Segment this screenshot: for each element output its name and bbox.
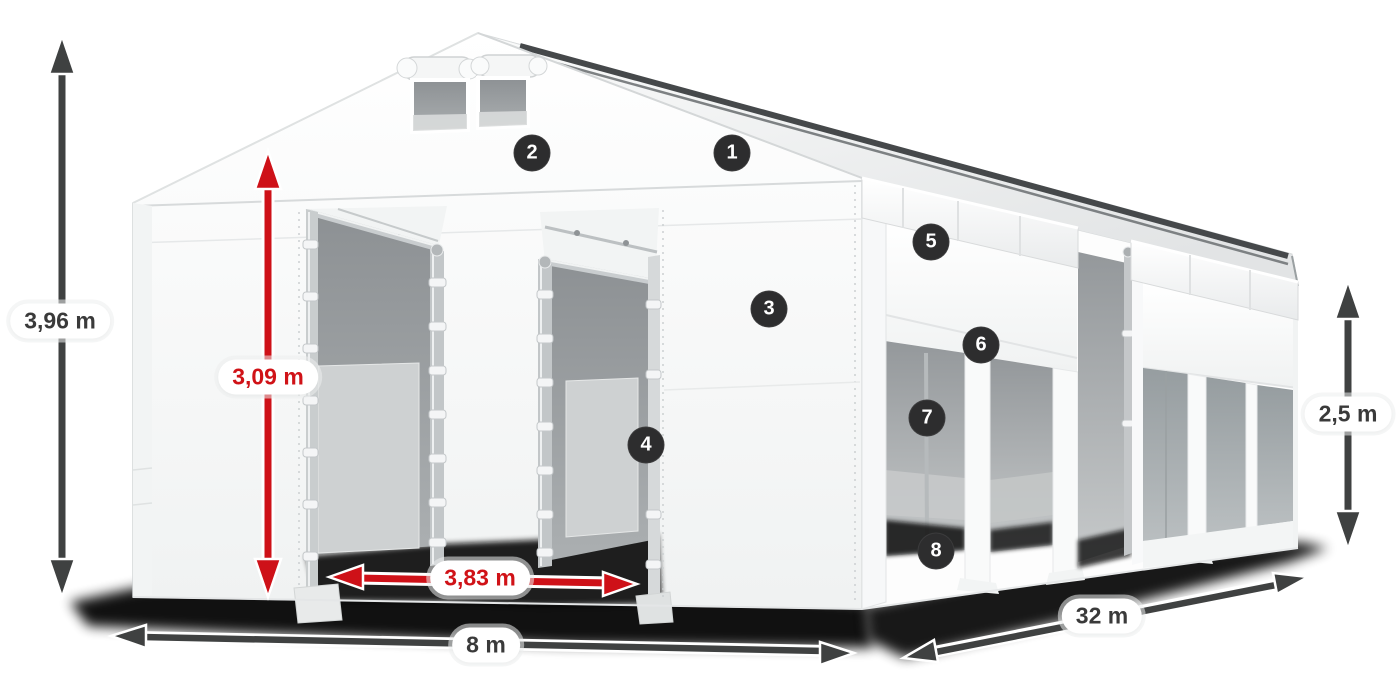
- door-gate-right: [537, 208, 659, 568]
- ground-pad-left: [294, 584, 342, 623]
- dimension-label-door-height: 3,09 m: [218, 360, 318, 395]
- feature-hotspot-7[interactable]: 7: [909, 400, 946, 437]
- feature-hotspot-2[interactable]: 2: [514, 135, 551, 172]
- feature-hotspot-1[interactable]: 1: [714, 135, 751, 172]
- product-figure: 3,96 m 3,09 m 3,83 m 8 m 32 m 2,5 m 1 2 …: [0, 0, 1400, 700]
- tent-illustration: [0, 0, 1400, 700]
- dimension-label-door-width: 3,83 m: [430, 561, 530, 596]
- feature-hotspot-5[interactable]: 5: [913, 224, 950, 261]
- ground-pad-right: [636, 592, 673, 624]
- feature-hotspot-3[interactable]: 3: [751, 291, 788, 328]
- feature-hotspot-8[interactable]: 8: [918, 533, 955, 570]
- side-window-3: [1257, 385, 1293, 526]
- side-window-2: [1206, 377, 1246, 533]
- feature-hotspot-4[interactable]: 4: [628, 427, 665, 464]
- side-corner-pillar: [862, 195, 886, 609]
- side-open-bay: [1078, 247, 1134, 568]
- dimension-label-side-height: 2,5 m: [1305, 397, 1392, 432]
- feature-hotspot-6[interactable]: 6: [963, 327, 1000, 364]
- dimension-label-length: 32 m: [1062, 599, 1142, 634]
- dimension-label-front-width: 8 m: [452, 628, 520, 663]
- door-gate-left: [305, 206, 447, 566]
- dimension-label-total-height: 3,96 m: [10, 304, 110, 339]
- door-window-left: [318, 363, 419, 553]
- front-left-corner: [133, 203, 152, 597]
- side-opening-b: [990, 358, 1053, 552]
- door-window-right: [566, 378, 638, 537]
